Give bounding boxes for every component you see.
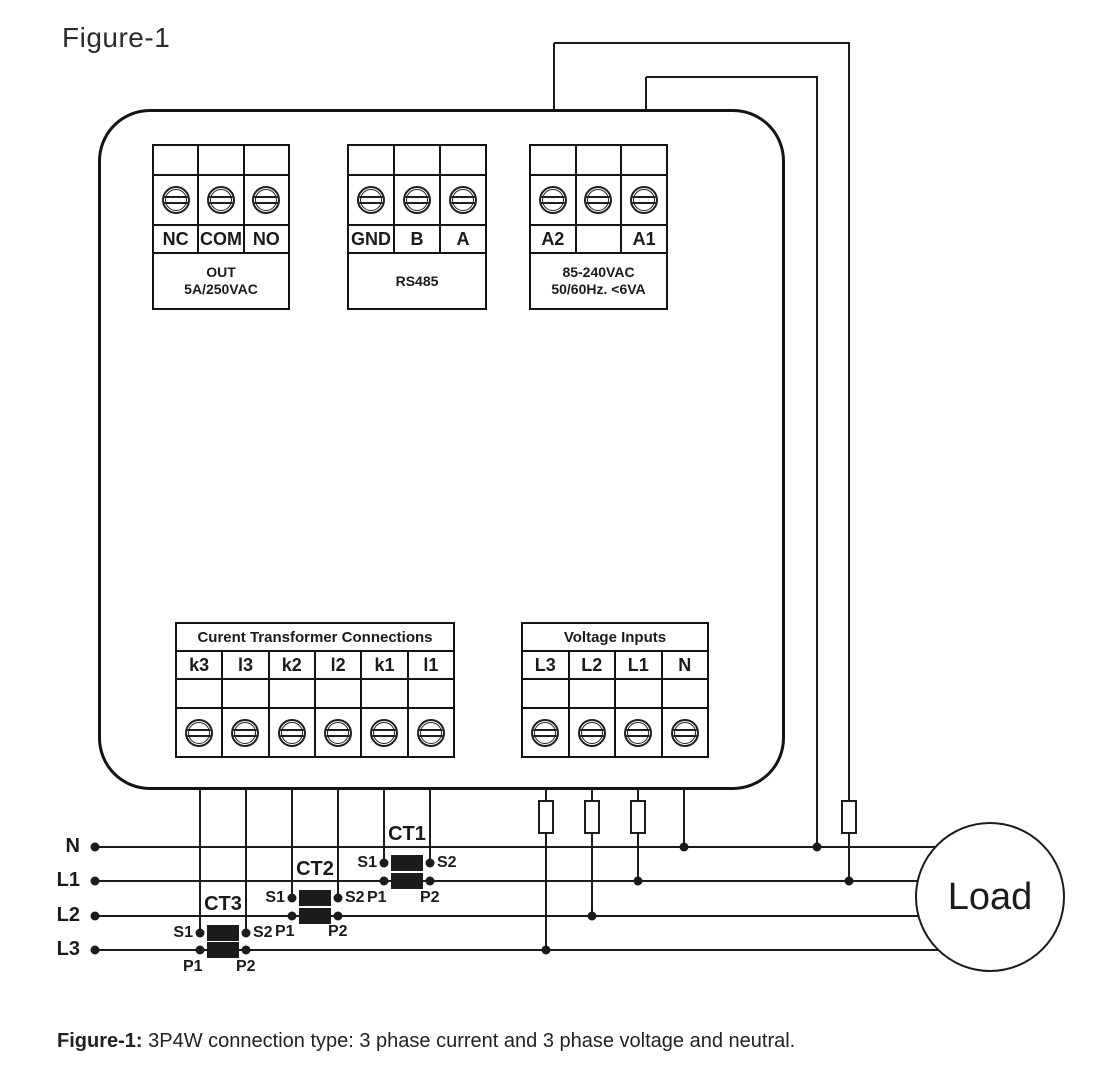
terminal-slot	[316, 680, 360, 707]
terminal-label-vn: N	[663, 652, 708, 678]
screw-terminal-icon	[578, 719, 606, 747]
terminal-slot	[199, 146, 242, 174]
terminal-slot	[570, 680, 615, 707]
phase-label-n: N	[38, 835, 80, 858]
wire-a2-top	[554, 42, 850, 44]
terminal-label-b: B	[395, 226, 439, 252]
ct3-s1-dot	[196, 929, 205, 938]
terminal-slot	[154, 146, 197, 174]
ct2-primary-winding	[299, 908, 331, 924]
screw-terminal-icon	[630, 186, 658, 214]
terminal-slot	[223, 680, 267, 707]
terminal-label-vl3: L3	[523, 652, 568, 678]
screw-terminal-icon	[584, 186, 612, 214]
relay-desc-line1: OUT	[206, 264, 236, 281]
ct2-s1-dot	[288, 894, 297, 903]
terminal-cell	[616, 709, 661, 756]
terminal-cell	[154, 176, 197, 224]
terminal-label-l3: l3	[223, 652, 267, 678]
terminal-cell	[622, 176, 666, 224]
ct2-p1-dot	[288, 912, 297, 921]
figure-caption: Figure-1: 3P4W connection type: 3 phase …	[57, 1030, 795, 1053]
terminal-block-relay-out: NC COM NO OUT 5A/250VAC	[152, 144, 290, 310]
terminal-label-k2: k2	[270, 652, 314, 678]
terminal-label-gnd: GND	[349, 226, 393, 252]
terminal-block-voltage: Voltage Inputs L3 L2 L1 N	[521, 622, 709, 758]
wiring-diagram-page: Figure-1 NC COM NO OUT 5A/250VAC	[0, 0, 1106, 1088]
ct1-primary-winding	[391, 873, 423, 889]
ct2-s2-label: S2	[345, 889, 365, 907]
terminal-slot	[663, 680, 708, 707]
terminal-label-vl1: L1	[616, 652, 661, 678]
screw-terminal-icon	[252, 186, 280, 214]
ct1-s1-dot	[380, 859, 389, 868]
rs485-desc-line1: RS485	[396, 273, 439, 290]
voltage-block-header: Voltage Inputs	[523, 624, 707, 650]
screw-terminal-icon	[539, 186, 567, 214]
ct3-s2-dot	[242, 929, 251, 938]
terminal-label-com: COM	[199, 226, 242, 252]
terminal-slot	[177, 680, 221, 707]
terminal-cell	[395, 176, 439, 224]
power-block-description: 85-240VAC 50/60Hz. <6VA	[531, 254, 666, 308]
terminal-slot	[441, 146, 485, 174]
fuse-supply-icon	[841, 800, 857, 834]
terminal-label-l2: l2	[316, 652, 360, 678]
wire-neutral-line	[95, 846, 958, 848]
terminal-slot	[245, 146, 288, 174]
terminal-cell	[531, 176, 575, 224]
phase-label-l3: L3	[38, 938, 80, 961]
junction-dot	[845, 877, 854, 886]
terminal-slot	[362, 680, 406, 707]
ct2-name-label: CT2	[285, 858, 345, 881]
ct3-p1-dot	[196, 946, 205, 955]
terminal-cell	[570, 709, 615, 756]
screw-terminal-icon	[531, 719, 559, 747]
terminal-cell	[441, 176, 485, 224]
junction-dot	[588, 912, 597, 921]
terminal-label-vl2: L2	[570, 652, 615, 678]
relay-desc-line2: 5A/250VAC	[184, 281, 258, 298]
ct3-p2-dot	[242, 946, 251, 955]
relay-block-description: OUT 5A/250VAC	[154, 254, 288, 308]
terminal-cell	[409, 709, 453, 756]
terminal-label-l1: l1	[409, 652, 453, 678]
ct1-p1-label: P1	[367, 889, 387, 907]
ct3-primary-winding	[207, 942, 239, 958]
terminal-slot	[395, 146, 439, 174]
screw-terminal-icon	[671, 719, 699, 747]
wire-a1-down	[816, 77, 818, 847]
phase-label-l1: L1	[38, 869, 80, 892]
terminal-label-a: A	[441, 226, 485, 252]
terminal-slot	[349, 146, 393, 174]
ct-block-header: Curent Transformer Connections	[177, 624, 453, 650]
junction-dot	[91, 912, 100, 921]
terminal-slot	[409, 680, 453, 707]
screw-terminal-icon	[370, 719, 398, 747]
ct2-s2-dot	[334, 894, 343, 903]
wire-l1-line	[95, 880, 958, 882]
terminal-slot	[523, 680, 568, 707]
screw-terminal-icon	[417, 719, 445, 747]
junction-dot	[91, 843, 100, 852]
wire-voltage-n	[683, 790, 685, 847]
terminal-slot	[622, 146, 666, 174]
terminal-label-a1: A1	[622, 226, 666, 252]
ct2-p2-label: P2	[328, 923, 348, 941]
wire-a1-top	[646, 76, 818, 78]
screw-terminal-icon	[357, 186, 385, 214]
terminal-block-power: A2 A1 85-240VAC 50/60Hz. <6VA	[529, 144, 668, 310]
terminal-label-k1: k1	[362, 652, 406, 678]
terminal-slot	[531, 146, 575, 174]
junction-dot	[542, 946, 551, 955]
phase-label-l2: L2	[38, 904, 80, 927]
terminal-cell	[199, 176, 242, 224]
figure-title: Figure-1	[62, 22, 170, 54]
junction-dot	[680, 843, 689, 852]
ct3-p1-label: P1	[183, 958, 203, 976]
junction-dot	[91, 877, 100, 886]
ct3-name-label: CT3	[193, 893, 253, 916]
power-desc-line2: 50/60Hz. <6VA	[551, 281, 645, 298]
junction-dot	[91, 946, 100, 955]
terminal-cell	[245, 176, 288, 224]
ct3-s2-label: S2	[253, 924, 273, 942]
terminal-label-k3: k3	[177, 652, 221, 678]
screw-terminal-icon	[624, 719, 652, 747]
caption-text: 3P4W connection type: 3 phase current an…	[148, 1030, 795, 1052]
junction-dot	[634, 877, 643, 886]
terminal-cell	[223, 709, 267, 756]
screw-terminal-icon	[207, 186, 235, 214]
ct2-p1-label: P1	[275, 923, 295, 941]
terminal-slot	[616, 680, 661, 707]
screw-terminal-icon	[185, 719, 213, 747]
terminal-slot	[270, 680, 314, 707]
terminal-cell	[316, 709, 360, 756]
wire-a1-stub	[645, 77, 647, 109]
load-label: Load	[948, 876, 1033, 919]
ct1-p2-label: P2	[420, 889, 440, 907]
screw-terminal-icon	[231, 719, 259, 747]
screw-terminal-icon	[449, 186, 477, 214]
rs485-block-description: RS485	[349, 254, 485, 308]
wire-a2-down	[848, 43, 850, 881]
terminal-cell	[177, 709, 221, 756]
terminal-label-a2: A2	[531, 226, 575, 252]
ct3-p2-label: P2	[236, 958, 256, 976]
terminal-cell	[577, 176, 621, 224]
screw-terminal-icon	[278, 719, 306, 747]
fuse-l2-icon	[584, 800, 600, 834]
terminal-label-nc: NC	[154, 226, 197, 252]
wire-a2-stub	[553, 43, 555, 109]
screw-terminal-icon	[324, 719, 352, 747]
terminal-slot	[577, 146, 621, 174]
ct1-s2-label: S2	[437, 854, 457, 872]
power-desc-line1: 85-240VAC	[562, 264, 634, 281]
ct1-s2-dot	[426, 859, 435, 868]
ct2-p2-dot	[334, 912, 343, 921]
terminal-label-blank	[577, 226, 621, 252]
fuse-l1-icon	[630, 800, 646, 834]
terminal-cell	[349, 176, 393, 224]
caption-label: Figure-1:	[57, 1030, 143, 1052]
terminal-block-ct: Curent Transformer Connections k3 l3 k2 …	[175, 622, 455, 758]
ct3-secondary-winding	[207, 925, 239, 941]
ct1-p2-dot	[426, 877, 435, 886]
fuse-l3-icon	[538, 800, 554, 834]
load-circle: Load	[915, 822, 1065, 972]
screw-terminal-icon	[403, 186, 431, 214]
ct1-name-label: CT1	[377, 823, 437, 846]
ct3-s1-label: S1	[153, 924, 193, 942]
terminal-cell	[362, 709, 406, 756]
terminal-label-no: NO	[245, 226, 288, 252]
terminal-cell	[270, 709, 314, 756]
ct1-p1-dot	[380, 877, 389, 886]
junction-dot	[813, 843, 822, 852]
ct1-secondary-winding	[391, 855, 423, 871]
terminal-block-rs485: GND B A RS485	[347, 144, 487, 310]
terminal-cell	[523, 709, 568, 756]
ct2-secondary-winding	[299, 890, 331, 906]
terminal-cell	[663, 709, 708, 756]
screw-terminal-icon	[162, 186, 190, 214]
